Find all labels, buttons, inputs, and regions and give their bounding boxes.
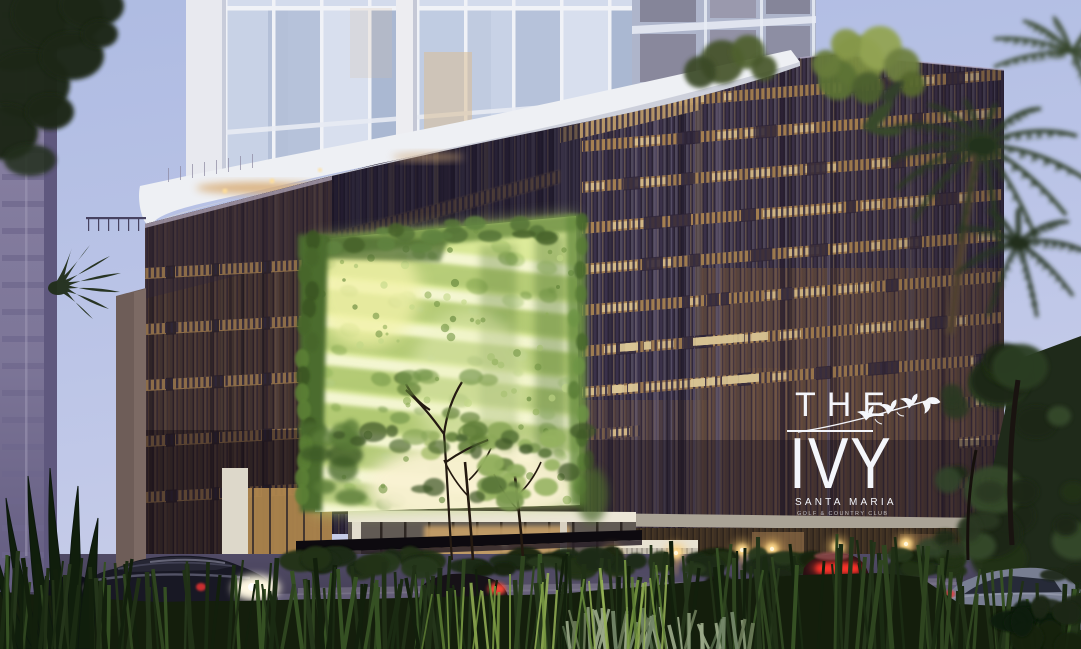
svg-text:SANTA MARIA: SANTA MARIA: [795, 497, 897, 508]
svg-text:IVY: IVY: [789, 424, 893, 504]
svg-text:GOLF & COUNTRY CLUB: GOLF & COUNTRY CLUB: [797, 511, 889, 517]
